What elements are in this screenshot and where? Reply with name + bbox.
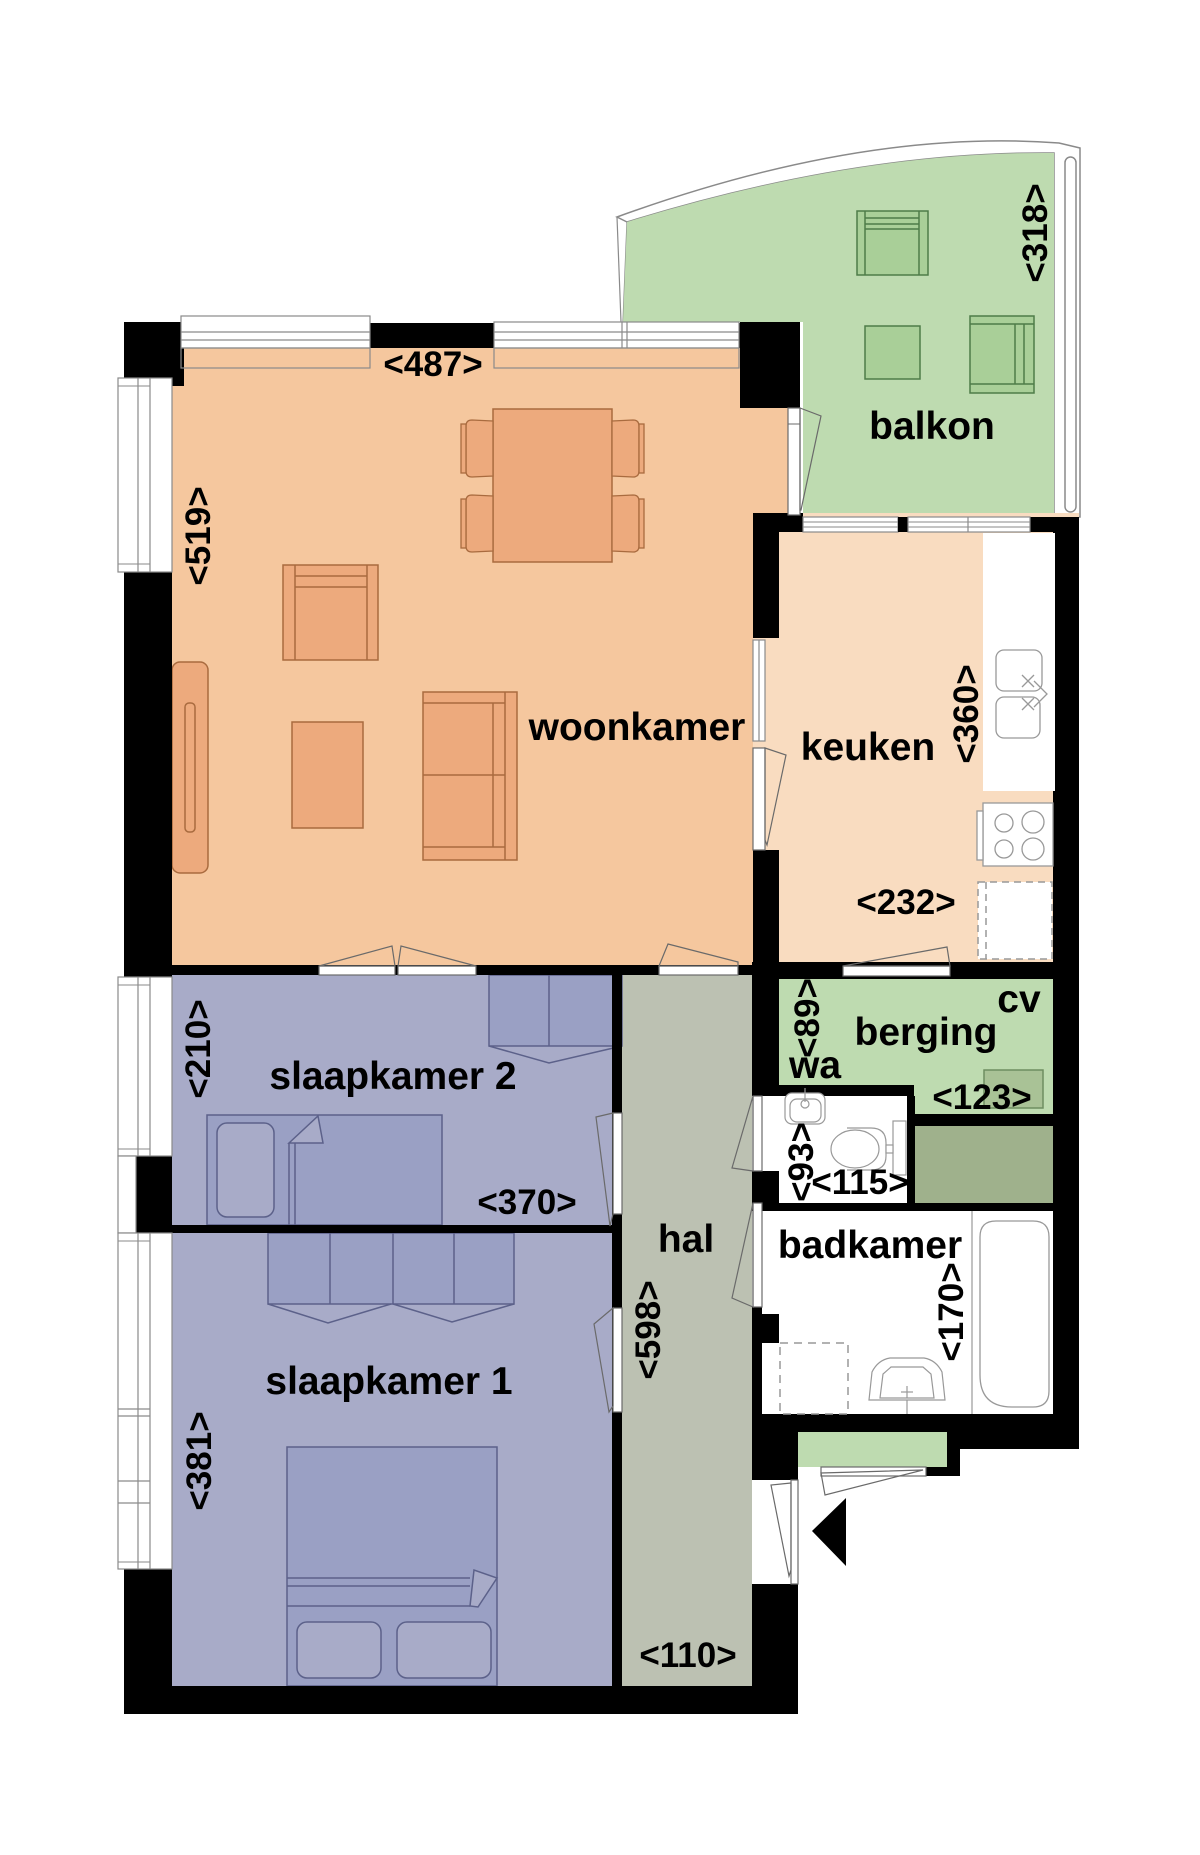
svg-text:<232>: <232> — [856, 883, 955, 922]
svg-text:<93>: <93> — [782, 1122, 821, 1202]
svg-text:keuken: keuken — [801, 726, 935, 769]
svg-text:<115>: <115> — [811, 1163, 908, 1202]
svg-text:<89>: <89> — [788, 978, 827, 1058]
svg-text:slaapkamer 2: slaapkamer 2 — [269, 1055, 516, 1098]
svg-text:<110>: <110> — [639, 1636, 736, 1675]
svg-text:<318>: <318> — [1016, 183, 1055, 282]
svg-text:cv: cv — [997, 978, 1041, 1021]
svg-text:<170>: <170> — [932, 1262, 971, 1361]
svg-text:balkon: balkon — [869, 405, 995, 448]
svg-text:badkamer: badkamer — [778, 1224, 962, 1267]
svg-text:<370>: <370> — [477, 1183, 576, 1222]
svg-text:<487>: <487> — [383, 345, 482, 384]
svg-text:<360>: <360> — [947, 664, 986, 763]
svg-text:<598>: <598> — [629, 1280, 668, 1379]
svg-text:<210>: <210> — [179, 999, 218, 1098]
svg-text:hal: hal — [658, 1218, 714, 1261]
svg-text:woonkamer: woonkamer — [528, 706, 746, 749]
svg-text:<381>: <381> — [180, 1411, 219, 1510]
svg-text:berging: berging — [855, 1011, 998, 1054]
svg-text:<123>: <123> — [932, 1078, 1031, 1117]
svg-text:<519>: <519> — [179, 486, 218, 585]
svg-text:slaapkamer 1: slaapkamer 1 — [265, 1360, 512, 1403]
